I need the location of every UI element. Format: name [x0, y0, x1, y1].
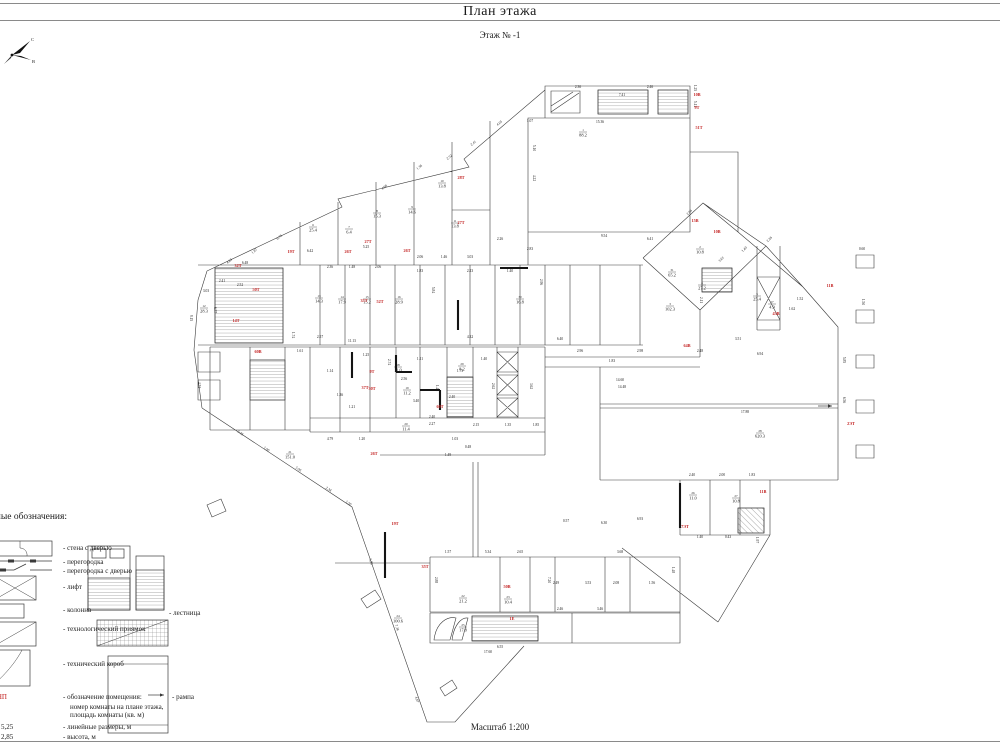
dimension-label: 2.27 [429, 422, 435, 426]
dimension-label: 2.36 [327, 265, 333, 269]
dimension-label: 1.83 [609, 359, 615, 363]
dimension-label: 1.40 [507, 269, 513, 273]
room-number-label: 13 [317, 294, 321, 298]
room-code-label: 9Т [695, 105, 700, 110]
dimension-label: 7.41 [619, 93, 625, 97]
dimension-label: 1.52 [797, 297, 803, 301]
dimension-label: 1.46 [435, 385, 439, 391]
dimension-label: 1.40 [741, 246, 748, 253]
dimension-label: 3.61 [718, 256, 725, 263]
dimension-label: 3.53 [585, 581, 591, 585]
dimension-label: 1.36 [337, 393, 343, 397]
room-number-label: 9 [411, 205, 413, 209]
dimension-label: 4.98 [381, 184, 389, 191]
dimension-label: 5.34 [485, 550, 491, 554]
room-number-label: 26 [691, 491, 695, 495]
dimension-label: 1.20 [359, 437, 365, 441]
room-code-label: 27Т [365, 239, 372, 244]
room-code-label: 9Т [370, 369, 375, 374]
room-number-label: 16 [397, 295, 401, 299]
dimension-label: 0.57 [563, 519, 569, 523]
dimension-label: 1.97 [755, 537, 759, 543]
room-area-label: 6.4 [346, 230, 352, 235]
legend-item-label: - технический короб [63, 660, 124, 668]
dimension-label: 6.41 [647, 237, 653, 241]
dimension-label: 2.40 [689, 473, 695, 477]
room-number-label: 23 [506, 595, 510, 599]
dimension-label: 6.40 [557, 337, 563, 341]
legend-column-symbol [0, 604, 24, 618]
legend-item-label: 2,85 [1, 733, 14, 741]
room-number-label: 29 [460, 362, 464, 366]
room-code-label: 50В [504, 584, 511, 589]
room-area-label: 17.9 [338, 300, 346, 305]
room-code-label: 27Т [458, 220, 465, 225]
dimension-label: 2.06 [417, 255, 423, 259]
dimension-label: 1.50 [861, 299, 865, 305]
room-code-label: 7ЭТ [681, 524, 689, 529]
room-number-label: 5 [756, 292, 758, 296]
dimension-label: 2.41 [470, 140, 478, 147]
dimension-label: 4.32 [467, 335, 473, 339]
dimension-label: 2.96 [577, 349, 583, 353]
room-code-label: 43В [773, 311, 780, 316]
room-area-label: 25.4 [753, 297, 761, 302]
dimension-label: 2.52 [237, 283, 243, 287]
legend-item-label: - стена с дверью [63, 544, 112, 552]
legend-item-label: - рампа [172, 693, 195, 701]
dimension-label: 1.11 [417, 357, 423, 361]
dimension-label: 4.63 [226, 258, 234, 265]
room-number-label: 22 [461, 594, 465, 598]
dimension-label: 5.25 [363, 245, 369, 249]
room-code-label: 19Т [288, 249, 295, 254]
room-number-label: 17 [770, 300, 774, 304]
dimension-label: 2.56 [401, 377, 407, 381]
room-number-label: 6 [312, 223, 314, 227]
room-code-label: 30Т [369, 386, 376, 391]
dimension-label: 4.22 [532, 175, 536, 181]
room-number-label: 7 [348, 225, 350, 229]
dimension-label: 5.85 [842, 357, 846, 363]
dimension-label: 6.30 [601, 521, 607, 525]
room-area-label: 88.2 [579, 133, 587, 138]
dimension-label: 2.65 [517, 550, 523, 554]
room-area-label: 4.9 [769, 305, 775, 310]
room-number-label: 14 [340, 295, 344, 299]
room-area-label: 27.2 [698, 286, 706, 291]
legend-item-label: 1-НП [0, 693, 7, 701]
room-number-label: 25 [461, 623, 465, 627]
dimension-label: 1.40 [481, 357, 487, 361]
dimension-label: 1.07 [527, 119, 533, 123]
dimension-label: 5.10 [532, 145, 536, 151]
room-code-label: 11В [827, 283, 834, 288]
room-area-label: 28.9 [395, 300, 403, 305]
dimension-label: 0.43 [725, 535, 731, 539]
floor-plan-drawing: С В [0, 0, 1000, 750]
legend-item-label: - перегородка [63, 558, 104, 566]
dimension-label: 1.50 [345, 500, 353, 507]
dimension-label: 4.67 [414, 696, 420, 703]
dimension-label: 2.49 [553, 581, 559, 585]
legend-item-label: - колонна [63, 606, 92, 614]
dimension-label: 2.11 [699, 297, 703, 303]
dimension-label: 4.74 [197, 382, 201, 388]
dimension-label: 2.74 [387, 359, 391, 365]
dimension-label: 1.36 [416, 164, 424, 171]
legend-item-label: номер комнаты на плане этажа, [70, 703, 164, 711]
dimension-label: 3.46 [597, 607, 603, 611]
room-number-label: 20 [404, 422, 408, 426]
legend-item-label: - перегородка с дверью [63, 567, 132, 575]
dimension-label: 2.46 [557, 607, 563, 611]
floor-plan-sheet: { "page": { "title": "План этажа", "subt… [0, 0, 1000, 750]
dimension-label: 1.21 [349, 405, 355, 409]
dimension-label: 7.20 [547, 577, 551, 583]
compass-north-letter: С [31, 37, 34, 42]
dimension-label: 1.83 [749, 473, 755, 477]
room-area-label: 102.3 [665, 307, 676, 312]
room-number-label: 30 [518, 295, 522, 299]
dimension-label: 17.88 [741, 410, 749, 414]
dimension-label: 6.55 [497, 645, 503, 649]
walls-thick [352, 268, 680, 578]
room-code-label: 26Т [345, 249, 352, 254]
dimension-label: 3.51 [735, 337, 741, 341]
dimension-label: 17.60 [484, 650, 492, 654]
room-code-label: 60Т [437, 404, 444, 409]
room-code-label: 37Т [362, 385, 369, 390]
room-area-label: 10.4 [504, 600, 512, 605]
room-code-label: 60В [255, 349, 262, 354]
legend-text-layer: Условные обозначения:- стена с дверью- п… [0, 511, 201, 741]
stairwell-hatch-areas [215, 90, 764, 641]
dimension-label: 1.25 [693, 85, 697, 91]
dimension-label: 2.83 [527, 247, 533, 251]
drive-lane-arrow [818, 404, 832, 407]
dimension-label: 1.83 [417, 269, 423, 273]
dimension-label: 2.15 [473, 423, 479, 427]
room-code-label: 32Т [235, 263, 242, 268]
legend-item-label: - лестница [169, 609, 201, 617]
dimension-label: 0.48 [465, 445, 471, 449]
room-number-label: 3 [669, 302, 671, 306]
room-code-label: 35Т [361, 298, 368, 303]
room-area-label: 28.3 [200, 309, 208, 314]
room-number-label: 31 [670, 268, 674, 272]
dimension-label: 2.40 [429, 415, 435, 419]
dimension-label: 6.77 [213, 307, 217, 313]
dimension-label: 1.87 [251, 248, 259, 255]
room-number-label: 8 [376, 209, 378, 213]
legend-item-label: - высота, м [63, 733, 96, 741]
dimension-label: 14.60 [616, 378, 624, 382]
dimension-label: 2.06 [375, 265, 381, 269]
dimension-label: 6.93 [637, 517, 643, 521]
dimension-label: 2.36 [575, 85, 581, 89]
legend-item-label: - обозначение помещения: [63, 693, 142, 701]
dimension-label: 6.42 [307, 249, 313, 253]
compass-rose: С В [4, 37, 35, 64]
room-number-label: 10 [440, 179, 444, 183]
legend-pit-symbol [0, 622, 36, 646]
room-number-label: 12 [202, 304, 206, 308]
room-code-label: 14Т [233, 318, 240, 323]
legend-wall-door-symbol [0, 541, 52, 556]
dimension-label: 1.03 [452, 437, 458, 441]
legend-partition-door-symbol [0, 564, 52, 570]
dimension-label: 2.26 [497, 237, 503, 241]
dimension-label: 2.41 [219, 279, 225, 283]
dimension-label: 1.14 [327, 369, 333, 373]
room-number-label: 11 [453, 219, 456, 223]
dimension-label: 1.62 [789, 307, 795, 311]
room-code-label: 52Т [377, 299, 384, 304]
dimension-label: 2.62 [491, 383, 495, 389]
room-code-label: 15В [692, 218, 699, 223]
dimension-label: 2.46 [647, 85, 653, 89]
dimension-label: 1.48 [671, 567, 675, 573]
dimension-label: 4.05 [496, 120, 504, 127]
room-area-label: 10.8 [696, 250, 704, 255]
dimension-label: 2.06 [686, 209, 693, 216]
dimension-label: 1.46 [441, 255, 447, 259]
compass-east-letter: В [32, 59, 35, 64]
dimension-label: 5.84 [431, 287, 435, 293]
room-area-label: 14.6 [408, 210, 416, 215]
room-code-label: 51Т [696, 125, 703, 130]
room-area-label: 11.4 [402, 427, 410, 432]
dimension-label: 6.76 [276, 234, 284, 241]
room-area-label: 100.6 [393, 619, 404, 624]
room-code-label: 2ЭТ [847, 421, 855, 426]
dimension-label: 15.36 [596, 120, 604, 124]
dimension-label: 1.25 [363, 353, 369, 357]
room-code-label: 11В [760, 489, 767, 494]
room-code-labels-layer: 32Т19Т26Т27Т26Т28Т27Т50Т14Т60В35Т52Т10В9… [233, 92, 856, 621]
dimension-label: 11.13 [348, 339, 356, 343]
dimension-label: 1.85 [533, 423, 539, 427]
room-code-label: 10В [714, 229, 721, 234]
room-code-label: 35Т [422, 564, 429, 569]
dimension-label: 6.56 [842, 397, 846, 403]
dimension-label: 6.48 [242, 261, 248, 265]
room-number-label: 28 [758, 429, 762, 433]
dimension-label: 1.74 [291, 332, 295, 338]
room-code-label: 1Е [510, 616, 515, 621]
room-area-label: 21.2 [459, 599, 467, 604]
legend-item-label: - линейные размеры, м [63, 723, 132, 731]
room-number-label: 24 [396, 614, 400, 618]
dimension-label: 1.56 [649, 581, 655, 585]
room-number-label: 18 [396, 363, 400, 367]
room-area-label: 25.4 [309, 228, 317, 233]
room-area-label: 14.3 [315, 299, 323, 304]
dimension-label: 3.40 [413, 399, 419, 403]
dimension-label: 3.62 [529, 383, 533, 389]
dimension-label: 5.45 [237, 430, 245, 437]
legend-lift-symbol [0, 576, 36, 600]
dimension-label: 2.96 [539, 279, 543, 285]
room-area-label: 13.8 [438, 184, 446, 189]
room-number-label: 21 [288, 450, 292, 454]
dimension-label: 0.60 [859, 247, 865, 251]
dimension-label: 2.08 [613, 581, 619, 585]
room-code-label: 19Т [392, 521, 399, 526]
room-area-label: 620.3 [755, 434, 766, 439]
dimension-label: 2.23 [467, 269, 473, 273]
room-code-label: 26Т [404, 248, 411, 253]
room-area-label: 11.0 [394, 368, 402, 373]
room-area-label: 10.8 [732, 499, 740, 504]
dimension-label: 2.26 [766, 236, 773, 243]
room-area-label: 11.0 [689, 496, 697, 501]
dimension-label: 4.79 [327, 437, 333, 441]
room-number-label: 27 [734, 494, 738, 498]
legend-duct-symbol [0, 650, 30, 686]
room-code-label: 10В [694, 92, 701, 97]
dimension-labels-layer: 15.367.412.462.365.111.255.104.221.079.5… [189, 85, 865, 704]
dimension-label: 1.35 [505, 423, 511, 427]
dimension-label: 2.88 [434, 577, 438, 583]
room-area-label: 11.2 [403, 391, 411, 396]
dimension-label: 1.90 [263, 446, 271, 453]
room-area-label: 8.2 [459, 367, 465, 372]
dimension-label: 1.49 [445, 453, 451, 457]
room-number-label: 2 [699, 245, 701, 249]
legend-heading: Условные обозначения: [0, 511, 67, 522]
dimension-label: 6.94 [757, 352, 763, 356]
dimension-label: 2.98 [637, 349, 643, 353]
room-area-label: 17.8 [459, 628, 467, 633]
dimension-label: 2.40 [449, 395, 455, 399]
room-area-label: 16.8 [516, 300, 524, 305]
room-area-label: 15.3 [373, 214, 381, 219]
legend-item-label: 5,25 [1, 723, 14, 731]
dimension-label: 2.48 [697, 349, 703, 353]
dimension-label: 1.40 [697, 535, 703, 539]
dimension-label: 14.48 [618, 385, 626, 389]
room-area-label: 151.0 [285, 455, 296, 460]
room-code-label: 26Т [371, 451, 378, 456]
dimension-label: 3.03 [203, 289, 209, 293]
dimension-label: 2.00 [719, 473, 725, 477]
dimension-label: 2.57 [317, 335, 323, 339]
dimension-label: 5.93 [368, 558, 374, 565]
legend-item-label: площадь комнаты (кв. м) [70, 711, 145, 719]
room-area-label: 65.2 [668, 273, 676, 278]
dimension-label: 1.48 [349, 265, 355, 269]
room-code-label: 28Т [458, 175, 465, 180]
room-number-label: 1 [582, 128, 584, 132]
dimension-label: 9.15 [189, 315, 193, 321]
room-code-label: 50Т [253, 287, 260, 292]
legend-item-label: - технологический приямок [63, 625, 146, 633]
dimension-label: 9.54 [601, 234, 607, 238]
dimension-label: 3.03 [467, 255, 473, 259]
legend-item-label: - лифт [63, 583, 82, 591]
room-number-label: 19 [405, 386, 409, 390]
dimension-label: 3.68 [617, 550, 623, 554]
dimension-label: 1.61 [297, 349, 303, 353]
dimension-label: 1.57 [445, 550, 451, 554]
room-code-label: 64В [684, 343, 691, 348]
